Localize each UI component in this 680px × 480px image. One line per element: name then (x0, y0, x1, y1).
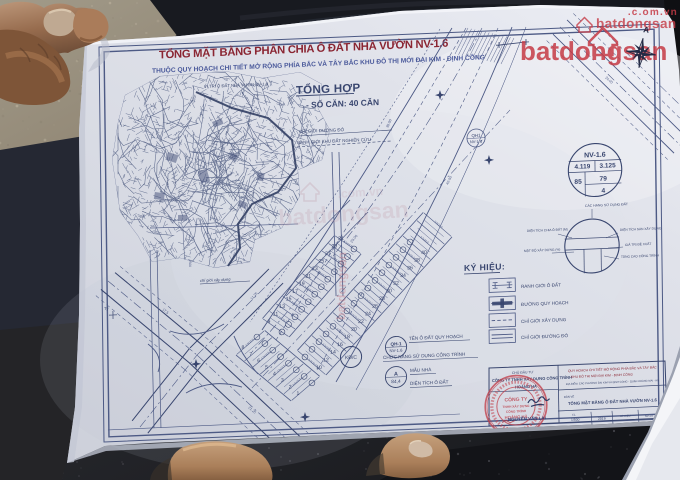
svg-text:KÝ HIỆU: KÝ HIỆU (620, 414, 631, 418)
svg-text:18: 18 (344, 334, 350, 340)
svg-text:8: 8 (241, 345, 244, 351)
svg-text:84,4: 84,4 (391, 379, 401, 385)
svg-text:2500: 2500 (188, 260, 192, 267)
svg-text:T.L: T.L (572, 413, 576, 417)
svg-text:4: 4 (601, 188, 605, 195)
svg-text:38: 38 (414, 258, 420, 264)
svg-text:Tỷ: Tỷ (104, 306, 109, 311)
svg-text:40: 40 (421, 250, 427, 256)
svg-text:CÔNG TRÌNH: CÔNG TRÌNH (506, 409, 527, 414)
svg-text:3.125: 3.125 (599, 162, 616, 170)
svg-text:24: 24 (365, 311, 371, 317)
svg-text:4.119: 4.119 (574, 163, 590, 171)
svg-text:16: 16 (337, 342, 343, 348)
svg-text:2: 2 (289, 384, 292, 390)
svg-text:CHỦ ĐẦU TƯ: CHỦ ĐẦU TƯ (512, 369, 534, 375)
svg-text:1: 1 (296, 391, 299, 397)
svg-text:26: 26 (372, 304, 378, 310)
svg-text:25: 25 (318, 258, 324, 264)
svg-text:KÝ HIỆU:: KÝ HIỆU: (464, 261, 505, 273)
svg-text:4: 4 (273, 371, 276, 377)
svg-text:14: 14 (330, 350, 336, 356)
svg-text:KĐ/C: KĐ/C (345, 355, 357, 361)
svg-text:79: 79 (599, 176, 607, 183)
svg-text:31: 31 (338, 236, 344, 242)
svg-text:batdongsan: batdongsan (596, 16, 677, 31)
svg-text:34: 34 (400, 273, 406, 279)
svg-text:2019: 2019 (598, 417, 606, 421)
svg-text:23: 23 (312, 266, 318, 272)
svg-text:17: 17 (292, 289, 298, 295)
svg-text:7: 7 (249, 351, 252, 357)
svg-text:15: 15 (286, 296, 292, 302)
svg-text:22: 22 (358, 319, 364, 325)
svg-text:NV-1.6: NV-1.6 (390, 348, 404, 354)
svg-text:36: 36 (407, 265, 413, 271)
svg-text:30: 30 (386, 288, 392, 294)
svg-text:NV-1.6: NV-1.6 (584, 152, 606, 160)
svg-text:21: 21 (305, 274, 311, 280)
svg-text:32: 32 (393, 281, 399, 287)
svg-text:QH1: QH1 (471, 133, 481, 138)
svg-text:20: 20 (351, 327, 357, 333)
svg-text:CÔNG TY: CÔNG TY (504, 396, 528, 404)
svg-text:QH-1: QH-1 (390, 341, 402, 346)
svg-text:29: 29 (331, 243, 337, 249)
svg-text:28: 28 (379, 296, 385, 302)
svg-text:BẢN VẼ: BẢN VẼ (564, 395, 575, 399)
svg-text:10: 10 (316, 365, 322, 371)
svg-text:13: 13 (279, 304, 285, 310)
svg-text:6: 6 (257, 358, 260, 364)
svg-text:19: 19 (299, 281, 305, 287)
svg-text:NV-1.6: NV-1.6 (470, 139, 483, 145)
svg-text:3: 3 (281, 378, 284, 384)
svg-text:MẪU NHÀ: MẪU NHÀ (410, 366, 432, 373)
svg-text:12: 12 (323, 357, 329, 363)
svg-text:85: 85 (574, 179, 582, 186)
svg-text:NV-1.6: NV-1.6 (645, 415, 654, 418)
svg-text:batdongsan: batdongsan (334, 252, 349, 320)
svg-text:HOÀNG HÀ: HOÀNG HÀ (515, 384, 537, 390)
svg-text:A: A (394, 371, 398, 377)
svg-text:27: 27 (325, 251, 331, 257)
svg-text:9: 9 (267, 319, 270, 325)
svg-text:5: 5 (265, 365, 268, 371)
svg-text:11: 11 (273, 311, 279, 317)
svg-text:1/500: 1/500 (571, 418, 580, 422)
